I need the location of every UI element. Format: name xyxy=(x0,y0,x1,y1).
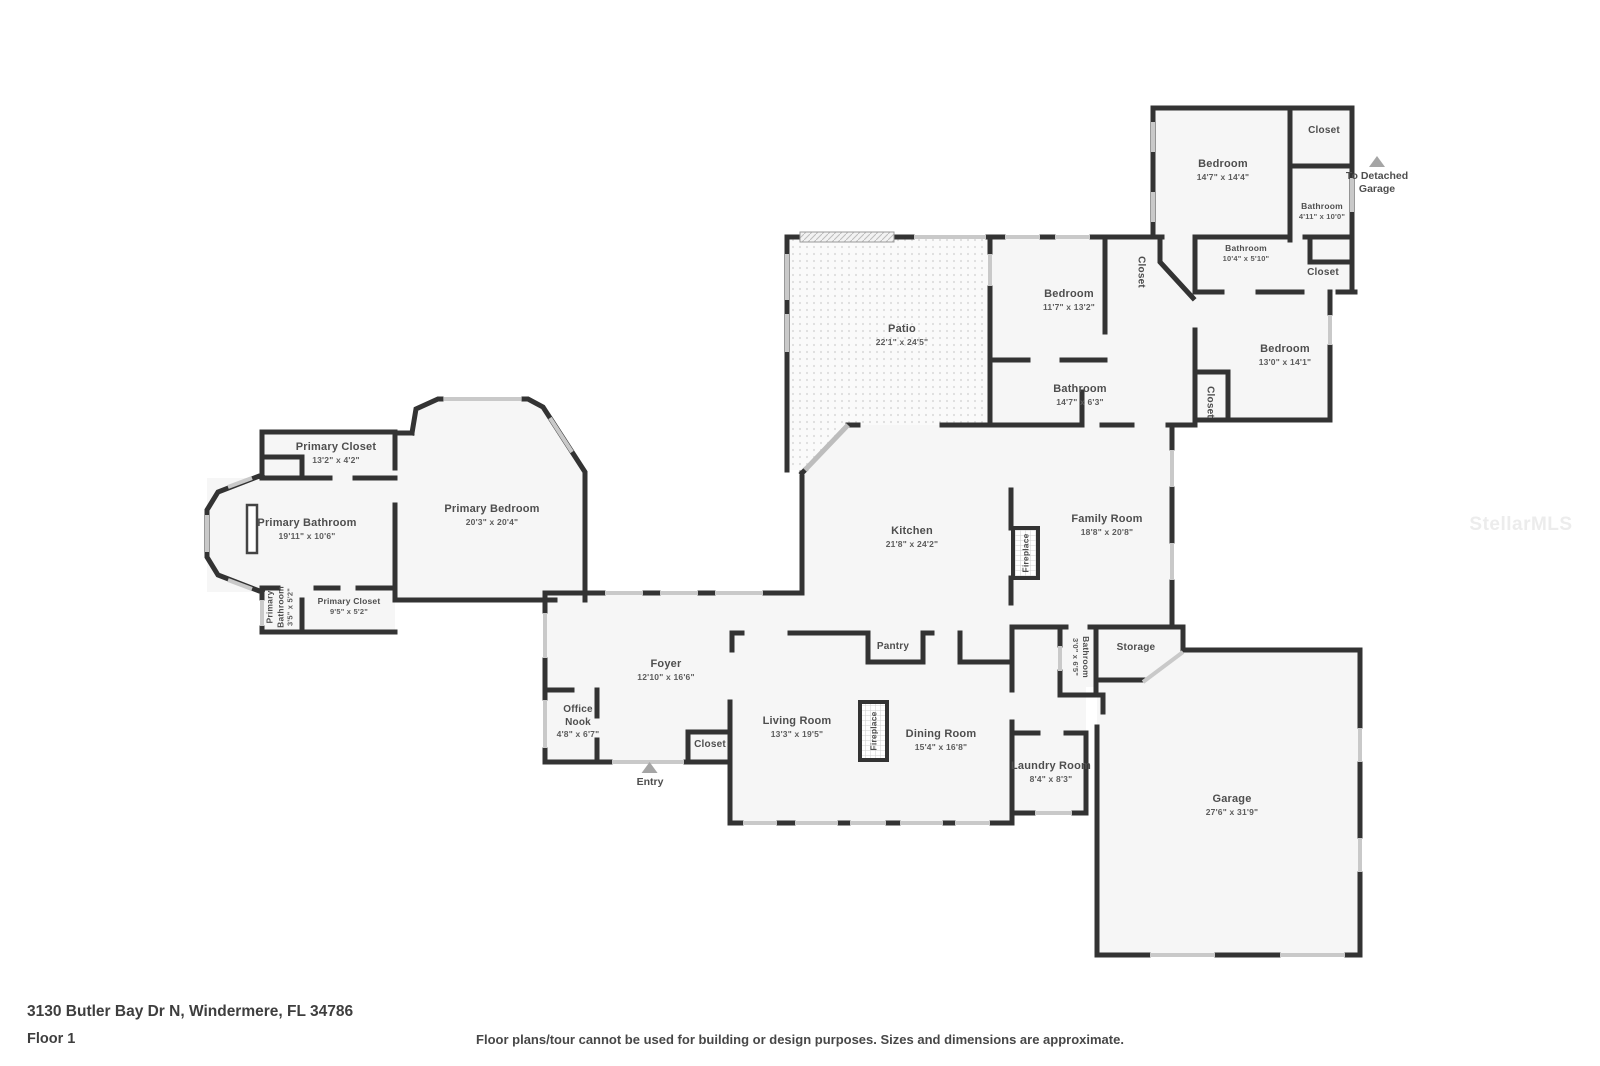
floor-plan-drawing xyxy=(0,0,1600,1066)
property-address: 3130 Butler Bay Dr N, Windermere, FL 347… xyxy=(27,1003,353,1021)
floor-plan-page: Bedroom14'7" x 14'4" Closet Bathroom4'11… xyxy=(0,0,1600,1066)
screen-window-band xyxy=(800,232,894,242)
floor-label: Floor 1 xyxy=(27,1031,75,1047)
room-fills-layer xyxy=(207,108,1360,955)
disclaimer-text: Floor plans/tour cannot be used for buil… xyxy=(476,1032,1124,1047)
fireplace-icon xyxy=(1013,528,1038,578)
bathtub-icon xyxy=(247,505,257,553)
fireplace-icon xyxy=(860,702,887,760)
